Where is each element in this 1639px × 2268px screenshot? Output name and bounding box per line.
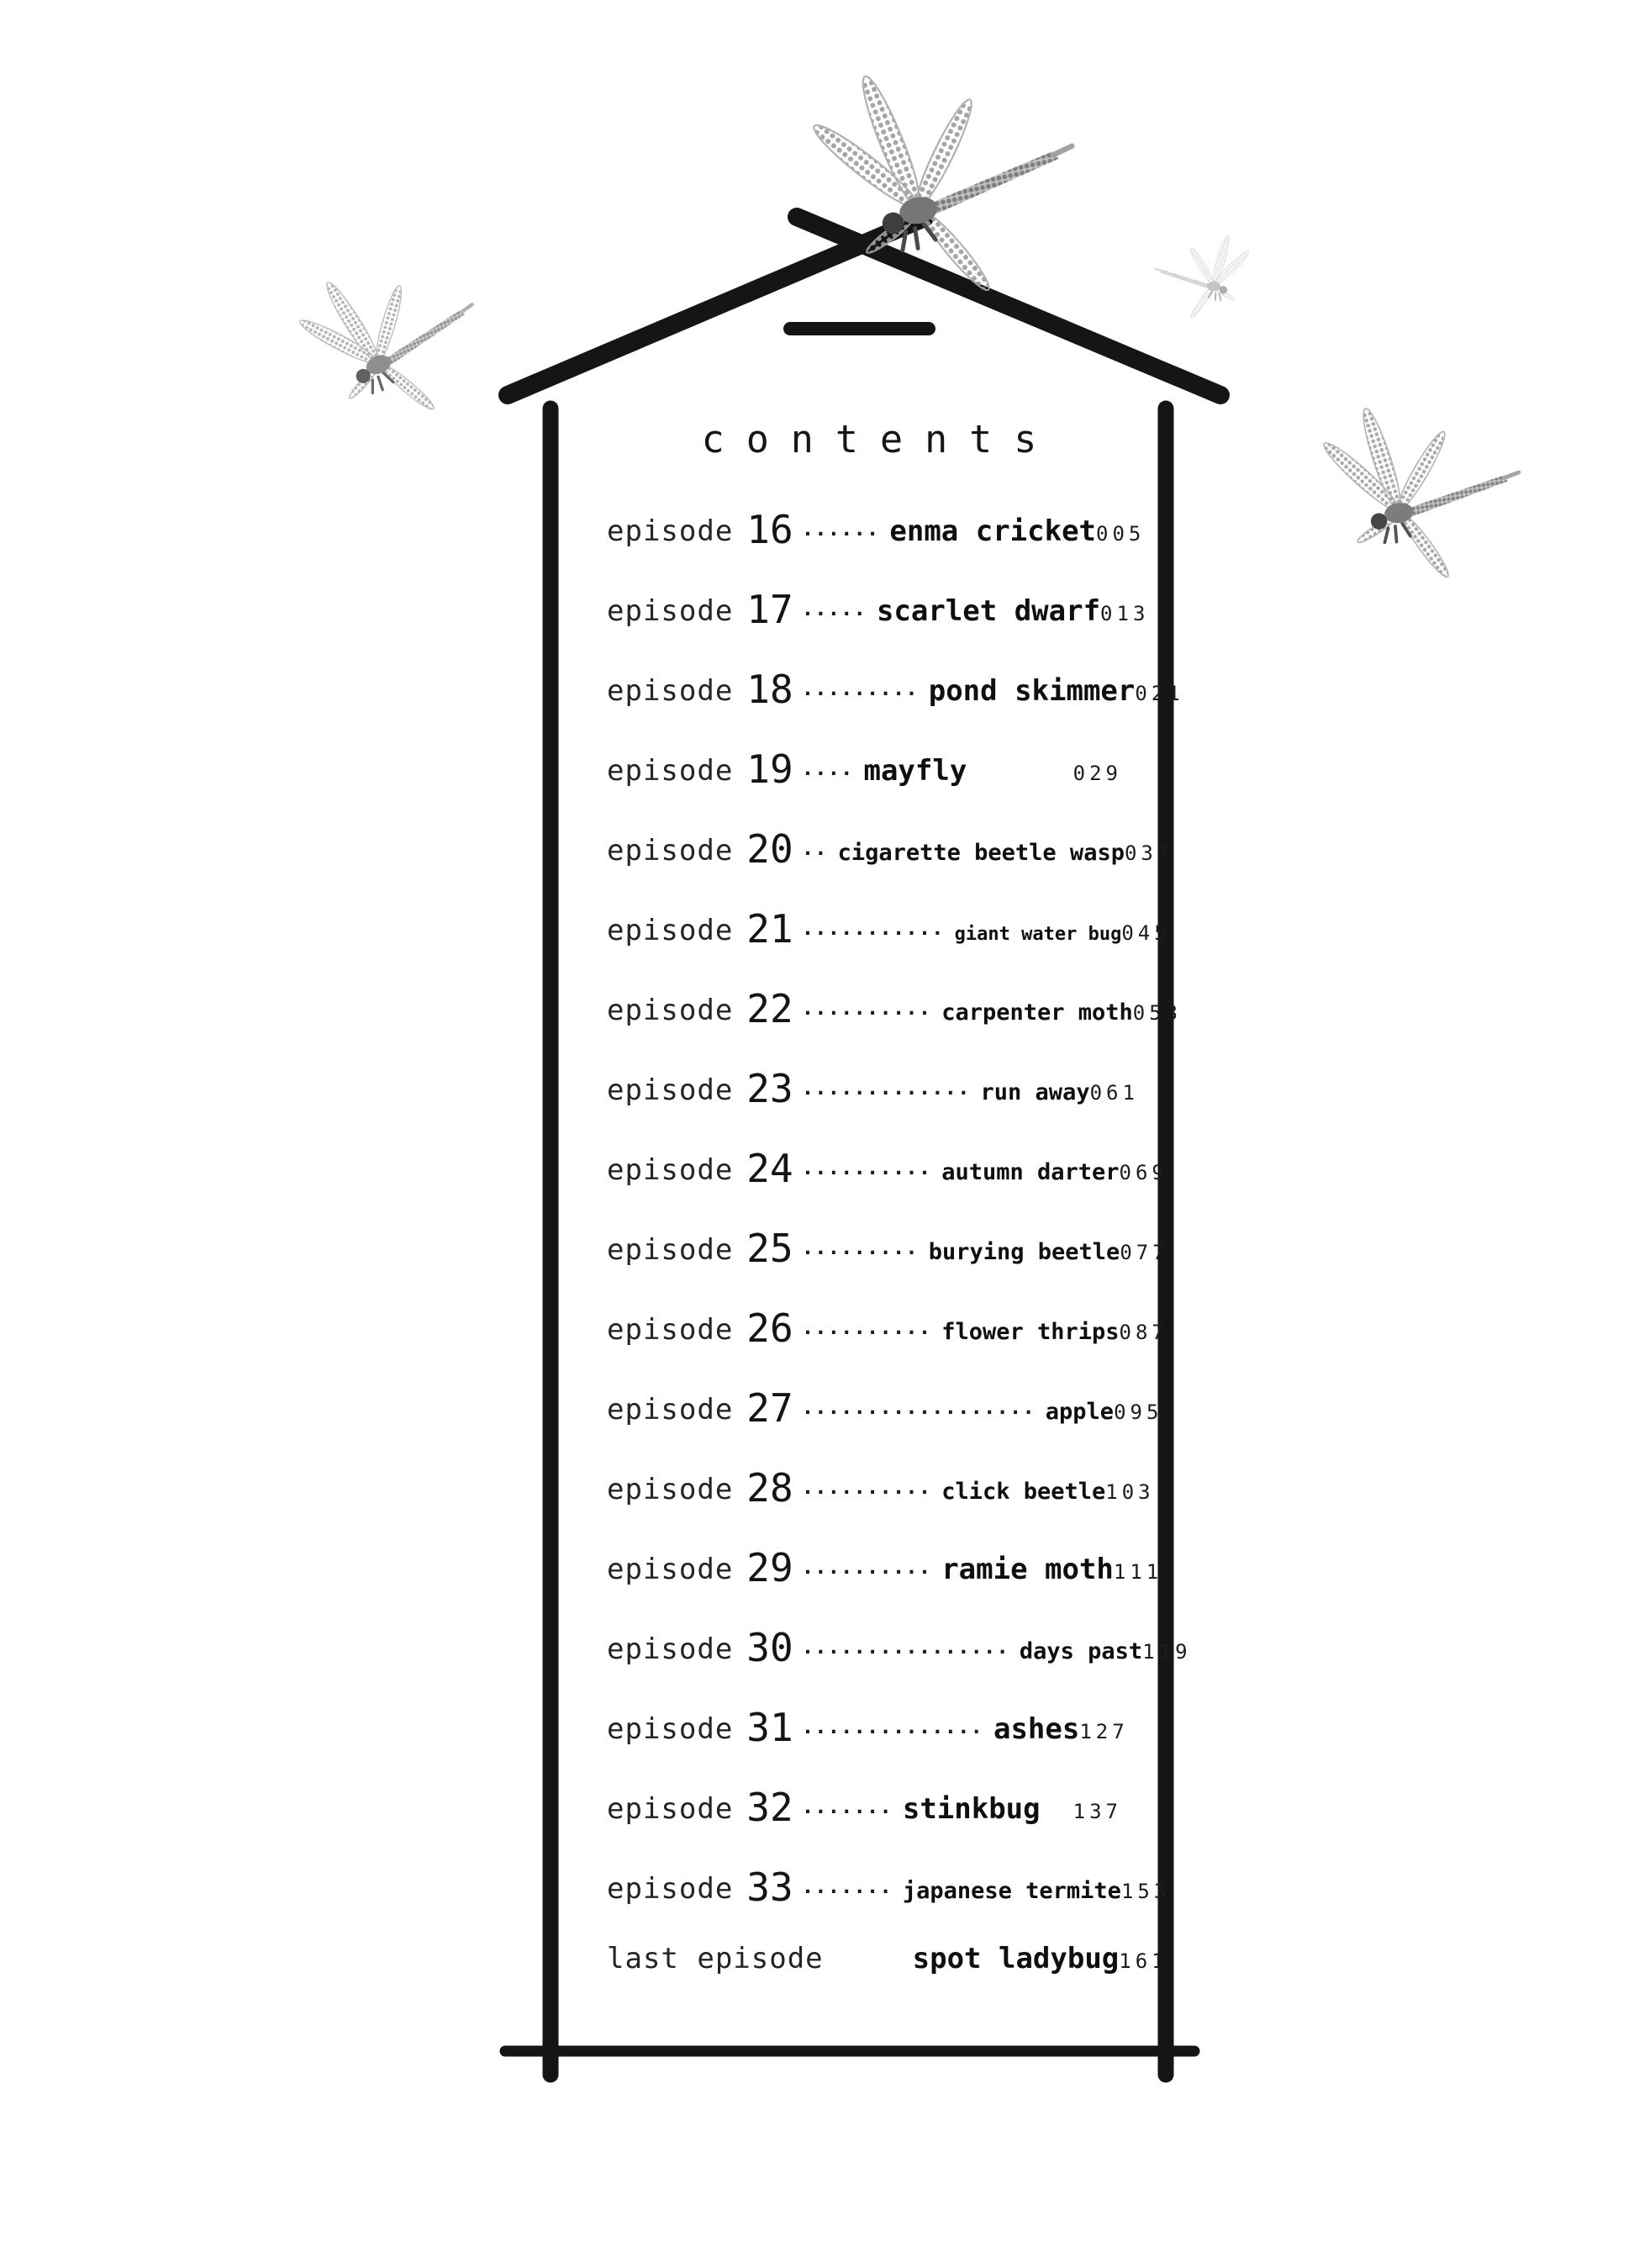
episode-title: scarlet dwarf <box>877 594 1100 628</box>
page-number: 021 <box>1135 682 1183 705</box>
toc-row: episode 22 ·········· carpenter moth 053 <box>607 984 1122 1063</box>
leader-dots: ·· <box>802 841 828 865</box>
leader-dots: ·········· <box>802 1480 932 1504</box>
episode-number: 23 <box>746 1066 793 1111</box>
toc-row: episode 28 ·········· click beetle 103 <box>607 1463 1122 1543</box>
leader-dots: ······· <box>802 1880 893 1903</box>
episode-number: 18 <box>746 667 793 712</box>
toc-row: episode 31 ·············· ashes 127 <box>607 1702 1122 1782</box>
toc-row: episode 33 ······· japanese termite 153 <box>607 1862 1122 1942</box>
toc-row: episode 16 ······ enma cricket 005 <box>607 504 1122 584</box>
episode-number: 31 <box>746 1705 793 1750</box>
episode-title: click beetle <box>941 1479 1105 1505</box>
episode-label: episode <box>607 1313 733 1347</box>
page-number: 013 <box>1100 602 1149 625</box>
episode-title: apple <box>1046 1399 1114 1425</box>
episode-label: episode <box>607 1233 733 1267</box>
episode-title: ashes <box>993 1712 1079 1746</box>
page-number: 037 <box>1125 841 1173 865</box>
episode-label: episode <box>607 1553 733 1586</box>
toc-row: episode 27 ·················· apple 095 <box>607 1383 1122 1463</box>
episode-label: episode <box>607 1632 733 1666</box>
leader-dots: ····· <box>802 602 867 625</box>
episode-title: carpenter moth <box>941 1000 1133 1026</box>
leader-dots: ········· <box>802 682 919 705</box>
episode-title: ramie moth <box>941 1553 1114 1586</box>
leader-dots: ······· <box>802 1800 893 1823</box>
episode-number: 30 <box>746 1625 793 1670</box>
episode-title: run away <box>981 1079 1090 1105</box>
toc-row: episode 24 ·········· autumn darter 069 <box>607 1143 1122 1223</box>
episode-label: episode <box>607 594 733 628</box>
episode-label: episode <box>607 1872 733 1906</box>
leader-dots: ······ <box>802 522 880 546</box>
leader-dots: ·········· <box>802 1161 932 1184</box>
leader-dots: ············· <box>802 1081 971 1105</box>
episode-number: 17 <box>746 587 793 632</box>
page-number: 153 <box>1121 1880 1170 1903</box>
episode-number: 24 <box>746 1146 793 1191</box>
leader-dots: ·········· <box>802 1001 932 1025</box>
page-number: 103 <box>1105 1480 1154 1504</box>
episode-number: 26 <box>746 1305 793 1351</box>
page-number: 087 <box>1120 1321 1168 1344</box>
toc-row: last episode spot ladybug 161 <box>607 1942 1122 2022</box>
leader-dots: ···· <box>802 762 854 785</box>
leader-dots: ········· <box>802 1241 919 1264</box>
episode-title: mayfly <box>863 754 967 788</box>
toc-row: episode 26 ·········· flower thrips 087 <box>607 1303 1122 1383</box>
page-number: 095 <box>1114 1400 1162 1424</box>
episode-number: 28 <box>746 1465 793 1511</box>
episode-label: episode <box>607 1393 733 1427</box>
episode-label: episode <box>607 674 733 708</box>
page-number: 045 <box>1121 921 1170 945</box>
episode-label: episode <box>607 994 733 1027</box>
page-number: 005 <box>1096 522 1145 546</box>
page-number: 119 <box>1142 1640 1191 1664</box>
dragonfly-right-icon <box>1314 387 1532 595</box>
toc-row: episode 21 ··········· giant water bug 0… <box>607 904 1122 984</box>
episode-title: autumn darter <box>941 1159 1119 1185</box>
episode-number: 27 <box>746 1385 793 1431</box>
leader-dots: ··········· <box>802 921 945 945</box>
episode-title: giant water bug <box>955 924 1122 945</box>
page-number: 111 <box>1114 1560 1162 1584</box>
episode-label: episode <box>607 754 733 788</box>
episode-number: 22 <box>746 986 793 1031</box>
episode-label: episode <box>607 514 733 548</box>
dragonfly-left-icon <box>285 235 504 448</box>
episode-title: spot ladybug <box>913 1942 1120 1975</box>
episode-title: stinkbug <box>903 1792 1041 1826</box>
page-number: 127 <box>1079 1720 1128 1743</box>
episode-label: episode <box>607 1792 733 1826</box>
page-number: 029 <box>1073 762 1122 785</box>
toc-row: episode 29 ·········· ramie moth 111 <box>607 1543 1122 1622</box>
episode-title: burying beetle <box>929 1239 1120 1265</box>
episode-title: days past <box>1020 1638 1142 1664</box>
episode-number: 29 <box>746 1545 793 1590</box>
page-title: contents <box>551 417 1188 462</box>
episode-title: japanese termite <box>903 1878 1121 1904</box>
toc-row: episode 18 ········· pond skimmer 021 <box>607 664 1122 744</box>
toc-row: episode 30 ················ days past 11… <box>607 1622 1122 1702</box>
leader-dots: ·········· <box>802 1321 932 1344</box>
toc-row: episode 32 ······· stinkbug 137 <box>607 1782 1122 1862</box>
episode-label: episode <box>607 834 733 868</box>
episode-label: episode <box>607 1712 733 1746</box>
page-number: 077 <box>1120 1241 1168 1264</box>
episode-number: 21 <box>746 906 793 952</box>
episode-title: flower thrips <box>941 1319 1119 1345</box>
page-number: 053 <box>1133 1001 1182 1025</box>
episode-label: last episode <box>607 1942 824 1975</box>
episode-title: pond skimmer <box>929 674 1136 708</box>
episode-number: 32 <box>746 1785 793 1830</box>
leader-dots: ·················· <box>802 1400 1036 1424</box>
episode-number: 16 <box>746 507 793 552</box>
episode-number: 25 <box>746 1226 793 1271</box>
episode-title: enma cricket <box>889 514 1096 548</box>
dragonfly-upper-right-icon <box>1151 228 1253 325</box>
page-number: 161 <box>1119 1949 1167 1973</box>
toc-row: episode 20 ·· cigarette beetle wasp 037 <box>607 824 1122 904</box>
episode-label: episode <box>607 1153 733 1187</box>
episode-label: episode <box>607 914 733 947</box>
leader-dots: ·············· <box>802 1720 983 1743</box>
leader-dots: ················ <box>802 1640 1009 1664</box>
episode-label: episode <box>607 1073 733 1107</box>
toc-row: episode 23 ············· run away 061 <box>607 1063 1122 1143</box>
toc-row: episode 19 ···· mayfly 029 <box>607 744 1122 824</box>
leader-dots: ·········· <box>802 1560 932 1584</box>
toc-row: episode 17 ····· scarlet dwarf 013 <box>607 584 1122 664</box>
toc-list: episode 16 ······ enma cricket 005 episo… <box>607 504 1122 2022</box>
page-number: 137 <box>1073 1800 1122 1823</box>
episode-number: 19 <box>746 746 793 792</box>
episode-number: 33 <box>746 1865 793 1910</box>
page-number: 069 <box>1120 1161 1168 1184</box>
contents-page: contents episode 16 ······ enma cricket … <box>0 0 1639 2268</box>
episode-label: episode <box>607 1473 733 1506</box>
toc-row: episode 25 ········· burying beetle 077 <box>607 1223 1122 1303</box>
page-number: 061 <box>1090 1081 1139 1105</box>
episode-number: 20 <box>746 826 793 872</box>
episode-title: cigarette beetle wasp <box>838 840 1125 866</box>
